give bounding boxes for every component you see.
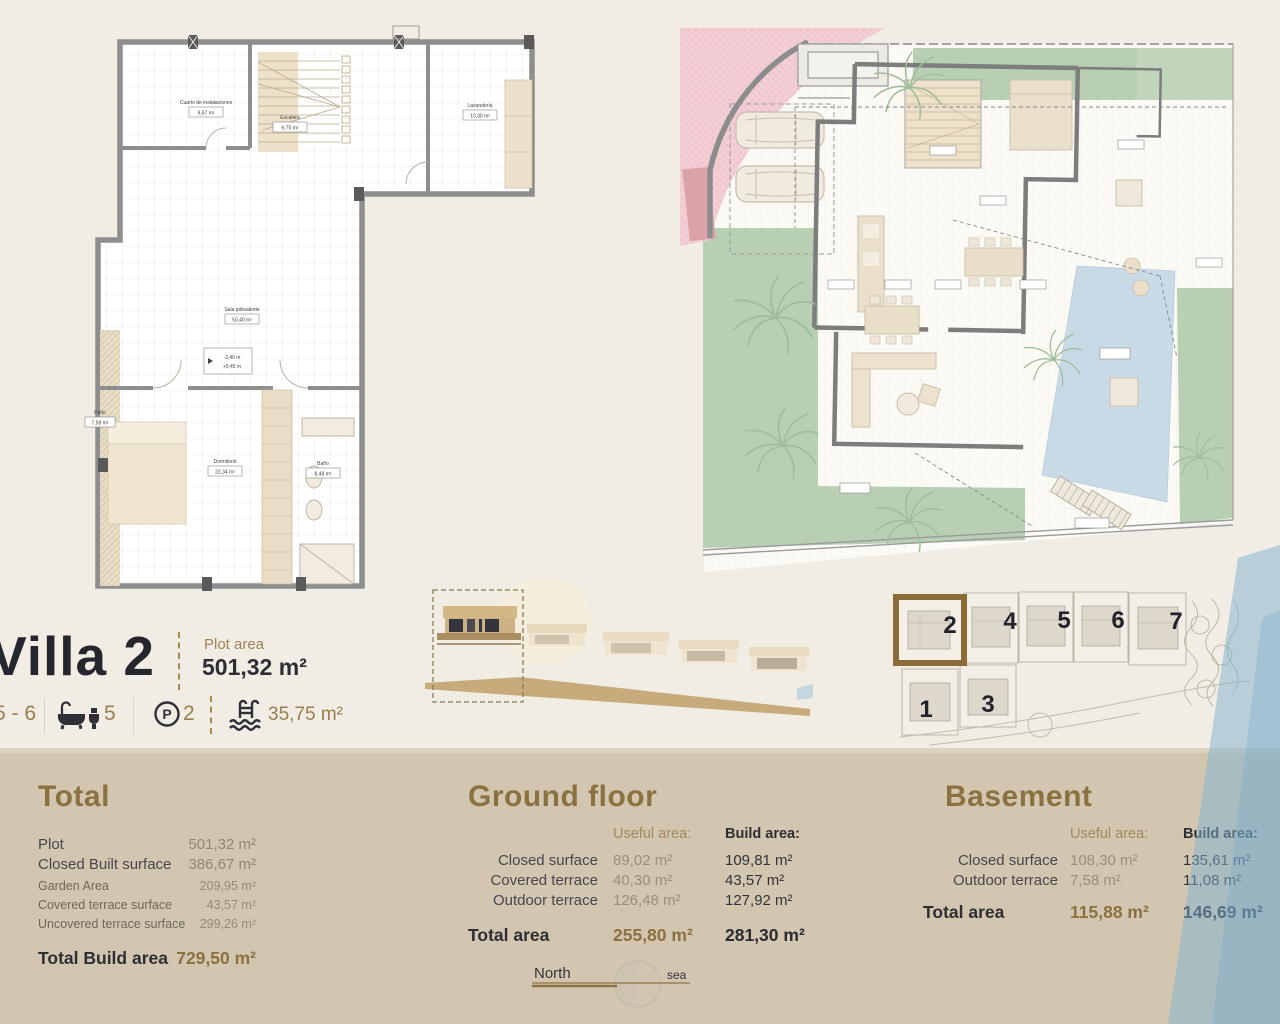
elevation-drawing [415,580,815,722]
cell: 89,02 m² [613,852,672,869]
north-label: North [534,965,571,982]
svg-text:2: 2 [943,612,956,639]
gf-build-header: Build area: [725,826,800,842]
svg-text:P: P [162,706,171,722]
total-build-area-row: Total Build area 729,50 m² [38,948,256,969]
bs-useful-header: Useful area: [1070,826,1148,842]
svg-text:7: 7 [1169,608,1182,635]
svg-text:50,40 m²: 50,40 m² [232,318,252,324]
footer-top-strip [0,748,1280,753]
svg-text:6: 6 [1111,607,1124,634]
cell: 40,30 m² [613,872,672,889]
table-row-label: Closed surface [930,852,1058,869]
site-trees [1184,599,1238,706]
svg-text:Sala polivalente: Sala polivalente [224,307,260,313]
table-row: Uncovered terrace surface 299,26 m² [38,917,256,931]
svg-text:Lavandería: Lavandería [467,103,492,109]
table-row-label: Outdoor terrace [930,872,1058,889]
cell: 126,48 m² [613,892,681,909]
bs-total-label: Total area [923,902,1004,923]
gf-total-label: Total area [468,925,549,946]
pool-area-value: 35,75 m² [268,704,343,726]
svg-text:Escalera: Escalera [280,115,300,121]
gf-total-build: 281,30 m² [725,925,805,946]
bed [108,422,186,524]
basement-heading: Basement [945,780,1092,814]
svg-text:8,48 m²: 8,48 m² [315,472,332,478]
cell: 43,57 m² [725,872,784,889]
svg-text:10,30 m²: 10,30 m² [470,114,490,120]
highlighted-villa [437,606,521,644]
compass: North sea [512,952,712,1024]
svg-text:1: 1 [919,696,932,723]
svg-text:Patio: Patio [94,410,106,416]
gf-useful-header: Useful area: [613,826,691,842]
cell: 11,08 m² [1183,872,1241,889]
bedrooms-count: 5 - 6 [0,702,36,726]
svg-text:3: 3 [981,691,994,718]
level-marker: -3,40 m +0,45 m [204,348,252,374]
svg-text:4: 4 [1003,608,1017,635]
table-row: Covered terrace surface 43,57 m² [38,898,256,912]
brochure-page: -3,40 m +0,45 m Cuarto de instalaciones … [0,0,1280,1024]
svg-text:5: 5 [1057,607,1070,634]
ground-floor-site-plan [680,28,1238,576]
cell: 109,81 m² [725,852,793,869]
svg-text:7,58 m²: 7,58 m² [92,421,109,427]
site-key-plan: 2 4 5 6 7 1 3 [890,585,1255,753]
total-heading: Total [38,780,110,814]
title-divider [178,632,180,690]
svg-text:-3,40 m: -3,40 m [224,355,241,361]
plot-area-label: Plot area [204,636,264,653]
feature-divider [44,698,45,734]
bs-build-header: Build area: [1183,826,1258,842]
page-title: Villa 2 [0,624,155,688]
bs-total-useful: 115,88 m² [1070,902,1149,923]
table-row-label: Closed surface [468,852,598,869]
table-row: Closed Built surface 386,67 m² [38,856,256,873]
table-row-label: Covered terrace [468,872,598,889]
bs-total-build: 146,69 m² [1183,902,1263,923]
svg-text:Dormitorio: Dormitorio [213,459,236,465]
plot-area-value: 501,32 m² [202,654,307,681]
gf-total-useful: 255,80 m² [613,925,693,946]
feature-divider-gold [210,696,212,734]
svg-text:9,67 m²: 9,67 m² [198,111,215,117]
sea-label: sea [667,968,687,982]
table-row: Garden Area 209,95 m² [38,879,256,893]
basement-floor-plan: -3,40 m +0,45 m Cuarto de instalaciones … [58,22,550,600]
svg-text:22,34 m²: 22,34 m² [215,470,235,476]
svg-text:6,70 m²: 6,70 m² [282,126,299,132]
bathrooms-count: 5 [104,702,116,726]
cell: 135,61 m² [1183,852,1251,869]
svg-text:Baño: Baño [317,461,329,467]
ground-floor-heading: Ground floor [468,780,657,814]
cell: 127,92 m² [725,892,793,909]
feature-divider-2 [133,698,134,734]
table-row: Plot 501,32 m² [38,836,256,853]
svg-text:Cuarto de instalaciones: Cuarto de instalaciones [180,100,233,106]
cell: 7,58 m² [1070,872,1121,889]
svg-text:+0,45 m: +0,45 m [223,364,241,370]
parking-count: 2 [183,702,195,726]
bathrooms-icon [56,700,102,732]
parking-icon: P [153,700,181,728]
table-row-label: Outdoor terrace [468,892,598,909]
cell: 108,30 m² [1070,852,1138,869]
pool-icon [228,698,266,732]
